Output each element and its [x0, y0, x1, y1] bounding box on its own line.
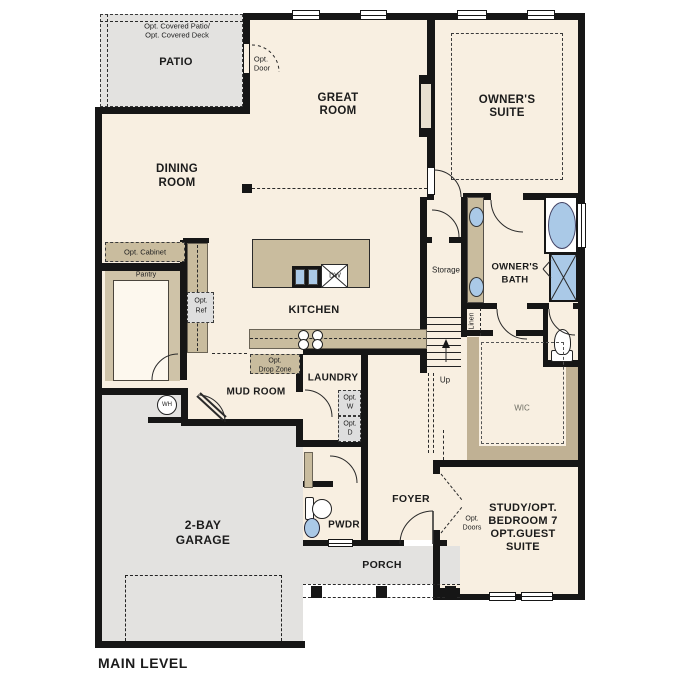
wic-shelving [566, 367, 578, 460]
window [521, 592, 553, 601]
great-room-label-2: ROOM [320, 105, 357, 117]
great-room-label-1: GREAT [318, 92, 359, 104]
sink-basin [308, 269, 318, 285]
window [360, 10, 387, 20]
wic-shelving [467, 337, 479, 448]
dishwasher-label: DW [328, 273, 342, 280]
vanity-sink [469, 207, 484, 227]
wall-segment [427, 13, 435, 77]
opt-cabinet-label: Opt. Cabinet [124, 248, 166, 257]
wall-segment [95, 641, 305, 648]
wall-segment [95, 107, 102, 648]
opt-drop-zone-label-1: Opt. [268, 358, 281, 365]
patio-note-1: Opt. Covered Patio/ [144, 22, 210, 31]
foyer-label: FOYER [392, 493, 430, 505]
ceiling-break-line [252, 188, 427, 189]
linen-label: Linen [469, 312, 476, 329]
patio-note-2: Opt. Covered Deck [145, 31, 209, 40]
pantry-inner [113, 280, 169, 381]
wall-segment [303, 540, 330, 546]
wall-segment [461, 303, 497, 309]
wall-segment [433, 460, 578, 467]
opt-dryer-label-2: D [347, 430, 352, 437]
opt-ref-label-2: Ref [196, 308, 207, 315]
opt-doors-label-1: Opt. [465, 516, 478, 523]
wall-segment [95, 107, 250, 114]
porch-post [376, 586, 387, 598]
closet-shelf [304, 452, 313, 488]
fireplace-inset [421, 84, 431, 128]
pwdr-sink [304, 518, 320, 538]
kitchen-counter [249, 329, 427, 349]
wall-segment [573, 303, 580, 309]
study-label-3: OPT.GUEST [490, 528, 555, 540]
wall-segment [95, 263, 187, 271]
porch-post [311, 586, 322, 598]
wall-segment [449, 237, 461, 243]
column-post [242, 184, 252, 193]
wic-shelving [467, 446, 578, 460]
opt-door-label-2: Door [254, 64, 270, 73]
garage-label-1: 2-BAY [185, 518, 221, 532]
wall-segment [352, 540, 404, 546]
window [489, 592, 516, 601]
porch-edge-line [303, 584, 460, 585]
opt-doors-label-2: Doors [463, 525, 482, 532]
patio-inner-line [107, 14, 108, 107]
understair-line [433, 373, 434, 453]
plan-title: MAIN LEVEL [98, 655, 188, 671]
wall-segment [361, 447, 368, 540]
garage-label-2: GARAGE [176, 533, 230, 547]
study-label-1: STUDY/OPT. [489, 502, 557, 514]
staircase [427, 311, 461, 372]
storage-label: Storage [432, 266, 460, 275]
cased-opening [427, 167, 435, 195]
opt-dryer-label-1: Opt. [343, 421, 356, 428]
wall-segment [148, 417, 186, 423]
opt-door-label-1: Opt. [254, 55, 268, 64]
study-label-2: BEDROOM 7 [488, 515, 557, 527]
pantry-label: Pantry [136, 272, 156, 279]
linen-front [480, 308, 481, 336]
dining-room-label-1: DINING [156, 163, 198, 175]
dining-room-label-2: ROOM [159, 177, 196, 189]
kitchen-label: KITCHEN [289, 304, 340, 316]
opt-ref-label-1: Opt. [194, 298, 207, 305]
opt-wall-line [443, 430, 444, 460]
toilet-icon [312, 499, 332, 519]
opt-washer-label-2: W [347, 404, 354, 411]
window [292, 10, 320, 20]
floor-plan: DW [0, 0, 687, 687]
opt-drop-zone-label-2: Drop Zone [258, 367, 291, 374]
counter-line [250, 338, 426, 339]
patio-door-opening [244, 44, 249, 73]
owners-bath-label-2: BATH [502, 275, 529, 286]
up-label: Up [440, 376, 450, 385]
mud-room-label: MUD ROOM [226, 387, 285, 398]
wall-segment [97, 388, 185, 395]
shower [549, 253, 578, 302]
owners-bath-label-1: OWNER'S [491, 262, 538, 273]
vanity-sink [469, 277, 484, 297]
window [457, 10, 487, 20]
owners-suite-label-2: SUITE [489, 107, 524, 119]
wic-label: WIC [514, 404, 530, 413]
laundry-label: LAUNDRY [308, 373, 359, 384]
window [527, 10, 555, 20]
pwdr-label: PWDR [328, 520, 360, 531]
wall-segment [427, 135, 435, 167]
cooktop-burner [298, 339, 309, 350]
porch-label: PORCH [362, 559, 401, 571]
cased-opening-line [212, 353, 247, 354]
wall-segment [361, 348, 368, 447]
wall-segment [420, 237, 432, 243]
study-label-4: SUITE [506, 541, 540, 553]
wic-outline [481, 342, 564, 444]
patio-label: PATIO [159, 56, 192, 68]
tub-basin [548, 202, 576, 249]
wall-segment [181, 419, 303, 426]
cooktop-burner [312, 339, 323, 350]
window [328, 539, 353, 547]
garage-door-outline [125, 575, 282, 641]
understair-line [428, 373, 429, 453]
porch-post [445, 586, 456, 598]
sink-basin [295, 269, 305, 285]
owners-suite-label-1: OWNER'S [479, 94, 536, 106]
water-heater-label: WH [162, 402, 172, 408]
opt-washer-label-1: Opt. [343, 395, 356, 402]
wall-segment [516, 330, 545, 336]
wall-segment [433, 467, 440, 474]
